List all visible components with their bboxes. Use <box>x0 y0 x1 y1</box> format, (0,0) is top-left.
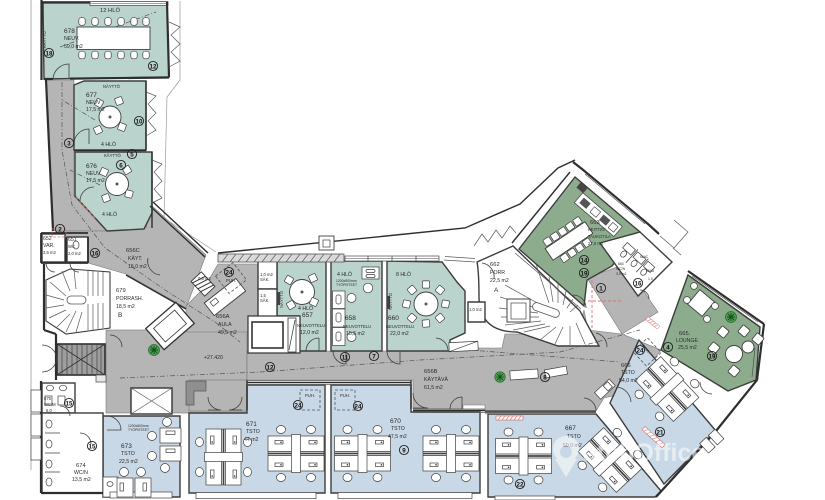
svg-text:656B: 656B <box>424 369 438 375</box>
svg-text:NEUVOTTELU: NEUVOTTELU <box>297 323 325 328</box>
svg-text:KÄYT.: KÄYT. <box>128 255 142 262</box>
svg-text:TYÖPISTEET: TYÖPISTEET <box>128 428 149 432</box>
svg-text:665.: 665. <box>679 331 691 337</box>
svg-text:KÄYTTÖ: KÄYTTÖ <box>104 153 121 158</box>
svg-text:KEITTIÖ/: KEITTIÖ/ <box>588 227 606 232</box>
svg-text:8 HLÖ: 8 HLÖ <box>396 271 411 278</box>
svg-text:WC: WC <box>68 244 75 249</box>
svg-text:4 HLÖ: 4 HLÖ <box>337 271 352 278</box>
svg-text:12,0 m2: 12,0 m2 <box>300 330 319 336</box>
svg-text:SÄK.: SÄK. <box>260 298 270 303</box>
svg-text:0,5 m2: 0,5 m2 <box>198 276 211 281</box>
svg-text:NEUVOTTELU: NEUVOTTELU <box>343 324 371 329</box>
svg-text:1: 1 <box>599 285 603 292</box>
svg-text:2,0 m2: 2,0 m2 <box>68 251 81 256</box>
svg-text:25,5 m2: 25,5 m2 <box>678 345 697 351</box>
svg-text:4 HLÖ: 4 HLÖ <box>102 211 117 218</box>
svg-text:11: 11 <box>342 354 349 361</box>
svg-text:PORR: PORR <box>490 270 505 276</box>
svg-text:NÄYTTÖ: NÄYTTÖ <box>279 290 284 308</box>
svg-text:NÄYTTÖ: NÄYTTÖ <box>103 84 121 89</box>
svg-text:12 HLÖ: 12 HLÖ <box>100 7 120 14</box>
svg-text:660: 660 <box>388 315 399 322</box>
svg-text:656A: 656A <box>216 314 230 320</box>
svg-text:TSTO: TSTO <box>246 429 260 435</box>
svg-text:KÄYTÄVÄ: KÄYTÄVÄ <box>424 376 448 383</box>
svg-text:A: A <box>494 287 499 294</box>
svg-text:NEUV: NEUV <box>86 171 101 177</box>
svg-text:3,5 m2: 3,5 m2 <box>43 250 56 255</box>
svg-text:652: 652 <box>43 236 52 242</box>
svg-text:WC/N: WC/N <box>74 470 88 476</box>
svg-text:SÄK.: SÄK. <box>260 277 270 282</box>
svg-text:59,0 m2: 59,0 m2 <box>64 44 83 50</box>
svg-text:17,5 m2: 17,5 m2 <box>86 107 105 113</box>
svg-text:15: 15 <box>66 400 73 407</box>
svg-text:657: 657 <box>302 312 313 319</box>
svg-text:675: 675 <box>44 396 52 401</box>
svg-text:PORRASH.: PORRASH. <box>116 296 143 302</box>
svg-text:678: 678 <box>64 28 75 35</box>
svg-text:24: 24 <box>295 402 302 409</box>
svg-text:PUH.: PUH. <box>305 393 315 398</box>
svg-text:B: B <box>118 312 122 319</box>
svg-text:22: 22 <box>517 481 524 488</box>
svg-text:21: 21 <box>657 429 664 436</box>
svg-text:15: 15 <box>89 443 96 450</box>
svg-text:7: 7 <box>372 353 376 360</box>
svg-text:TSTO: TSTO <box>391 426 405 432</box>
svg-text:AULA: AULA <box>218 322 232 328</box>
svg-text:667: 667 <box>565 425 576 432</box>
svg-text:664C: 664C <box>640 255 649 259</box>
svg-text:670: 670 <box>390 418 401 425</box>
svg-text:22,5 m2: 22,5 m2 <box>119 459 138 465</box>
svg-text:16: 16 <box>635 280 642 287</box>
svg-text:atchOffice: atchOffice <box>583 439 705 467</box>
svg-text:666: 666 <box>621 363 631 369</box>
svg-text:8: 8 <box>543 374 547 381</box>
svg-text:PUH.: PUH. <box>226 278 236 283</box>
svg-text:VAR.: VAR. <box>43 243 55 249</box>
svg-text:6,0: 6,0 <box>46 408 52 413</box>
svg-text:2: 2 <box>58 226 62 233</box>
svg-text:13,5 m2: 13,5 m2 <box>72 477 91 483</box>
svg-text:TSTO: TSTO <box>121 451 135 457</box>
svg-text:NÄYTTÖ: NÄYTTÖ <box>388 292 393 310</box>
svg-text:24: 24 <box>226 269 233 276</box>
svg-text:671: 671 <box>246 421 257 428</box>
svg-text:KÄYTTÖ: KÄYTTÖ <box>42 31 47 48</box>
svg-text:9: 9 <box>402 447 406 454</box>
svg-text:651: 651 <box>68 237 77 243</box>
svg-text:44 m2: 44 m2 <box>244 437 259 443</box>
svg-text:47,5 m2: 47,5 m2 <box>388 434 407 440</box>
svg-text:TYÖPISTEET: TYÖPISTEET <box>336 283 357 287</box>
svg-text:14: 14 <box>581 257 588 264</box>
svg-text:663: 663 <box>590 220 600 226</box>
svg-text:677: 677 <box>86 92 97 99</box>
svg-text:22,5 m2: 22,5 m2 <box>490 278 509 284</box>
svg-text:4 HLÖ: 4 HLÖ <box>298 305 313 312</box>
svg-text:TAUKOTILA: TAUKOTILA <box>588 234 611 239</box>
svg-text:54,0 m2: 54,0 m2 <box>619 378 638 384</box>
svg-text:673: 673 <box>121 443 132 450</box>
svg-text:662: 662 <box>490 262 500 268</box>
svg-text:12: 12 <box>150 63 157 70</box>
svg-text:1,0 m2: 1,0 m2 <box>469 307 482 312</box>
svg-text:10: 10 <box>136 118 143 125</box>
svg-text:+27.420: +27.420 <box>204 355 223 361</box>
svg-text:3,0 m2: 3,0 m2 <box>616 272 626 276</box>
svg-text:676: 676 <box>86 163 97 170</box>
svg-text:674: 674 <box>76 463 86 469</box>
svg-text:WC/M: WC/M <box>44 402 56 407</box>
svg-text:24: 24 <box>355 403 362 410</box>
svg-text:NEUV: NEUV <box>86 100 101 106</box>
svg-text:664D: 664D <box>646 269 655 273</box>
svg-text:LOUNGE: LOUNGE <box>676 338 698 344</box>
svg-text:18: 18 <box>46 50 53 57</box>
svg-text:15,0 m2: 15,0 m2 <box>128 264 147 270</box>
svg-text:22,0 m2: 22,0 m2 <box>390 331 409 337</box>
svg-text:24: 24 <box>637 347 644 354</box>
svg-text:17,5 m2: 17,5 m2 <box>86 178 105 184</box>
svg-text:4 HLÖ: 4 HLÖ <box>101 141 116 148</box>
svg-text:PUH.: PUH. <box>340 393 350 398</box>
svg-text:19: 19 <box>709 353 716 360</box>
svg-text:5: 5 <box>130 151 134 158</box>
svg-text:1,0: 1,0 <box>648 277 653 281</box>
svg-text:NEUVOTTELU: NEUVOTTELU <box>386 324 414 329</box>
svg-text:TSTO: TSTO <box>621 370 635 376</box>
svg-text:NEUV.: NEUV. <box>64 36 79 42</box>
svg-text:12: 12 <box>267 364 274 371</box>
svg-text:49,5 m2: 49,5 m2 <box>218 330 237 336</box>
svg-text:3: 3 <box>67 140 71 147</box>
svg-text:4: 4 <box>666 344 670 351</box>
svg-text:6: 6 <box>119 162 123 169</box>
svg-text:658: 658 <box>345 315 356 322</box>
svg-text:15,5 m2: 15,5 m2 <box>346 331 365 337</box>
svg-text:27,0 m2: 27,0 m2 <box>588 241 604 246</box>
svg-text:19: 19 <box>581 270 588 277</box>
svg-text:WC/N: WC/N <box>616 267 626 271</box>
svg-text:656C: 656C <box>126 248 140 254</box>
svg-text:679: 679 <box>116 288 126 294</box>
svg-text:16: 16 <box>92 250 99 257</box>
svg-text:664: 664 <box>618 262 624 266</box>
svg-text:18,5 m2: 18,5 m2 <box>116 304 135 310</box>
svg-text:61,5 m2: 61,5 m2 <box>424 385 443 391</box>
